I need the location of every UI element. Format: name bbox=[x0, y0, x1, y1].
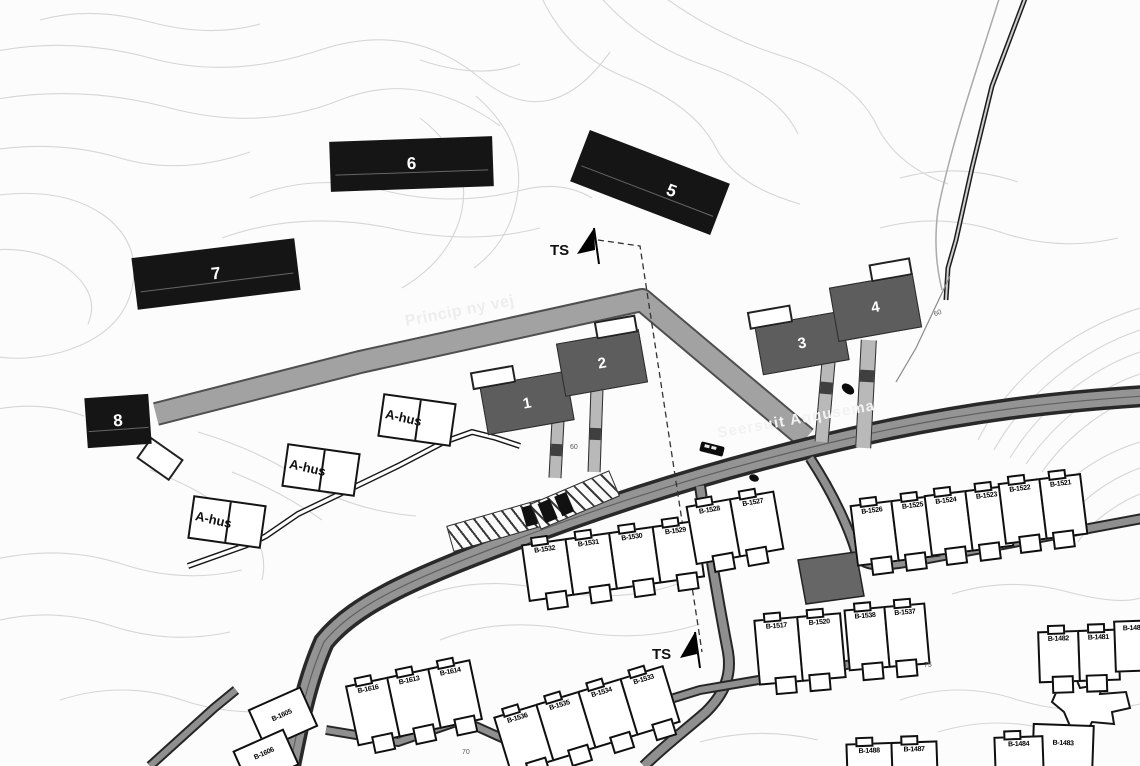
house-label: B-1480 bbox=[1115, 624, 1140, 632]
house: B-1520 bbox=[796, 612, 847, 682]
house-pair: B-1488 B-1487 bbox=[845, 740, 936, 766]
parking-stall-filled bbox=[554, 492, 574, 516]
elevation-mark: 60 bbox=[570, 444, 578, 451]
house-label: B-1488 bbox=[848, 747, 891, 755]
house-label: B-1537 bbox=[886, 608, 924, 618]
site-plan-map: 6 5 7 8 1 2 3 4 A-hus A-hus A-hus B-1532… bbox=[0, 0, 1140, 766]
house-label: B-1606 bbox=[239, 740, 289, 766]
ts-marker-label: TS bbox=[550, 242, 569, 259]
house-label: B-1526 bbox=[852, 505, 892, 517]
elevation-mark: 70 bbox=[462, 749, 470, 756]
house-label: B-1521 bbox=[1041, 478, 1081, 490]
house: B-1480 bbox=[1113, 619, 1140, 672]
house-label: B-1482 bbox=[1039, 635, 1077, 643]
parking-stall-filled bbox=[538, 499, 558, 523]
house-label: B-1531 bbox=[567, 537, 610, 550]
house-label: B-1522 bbox=[1000, 483, 1040, 495]
princip-road bbox=[156, 300, 806, 438]
house-label: B-1520 bbox=[799, 617, 840, 628]
building-number: 1 bbox=[521, 394, 532, 412]
house: B-1521 bbox=[1038, 473, 1088, 540]
house-label: B-1484 bbox=[996, 740, 1042, 749]
ts-flag-icon bbox=[577, 228, 599, 264]
house-pair: B-1517 B-1520 bbox=[753, 612, 844, 685]
house-label: B-1532 bbox=[523, 543, 566, 556]
ts-marker-label: TS bbox=[652, 646, 671, 663]
building-number: 2 bbox=[596, 354, 607, 372]
house-label: B-1524 bbox=[926, 495, 966, 507]
house-pair: B-1522 B-1521 bbox=[998, 473, 1087, 545]
house-pair: B-1528 B-1527 bbox=[685, 491, 782, 565]
house: B-1484 bbox=[993, 735, 1044, 766]
house-label: B-1517 bbox=[756, 621, 797, 632]
house-label: B-1487 bbox=[893, 745, 936, 753]
house-pair: B-1482 B-1481 bbox=[1037, 629, 1119, 684]
building-block-6: 6 bbox=[329, 136, 494, 192]
house: B-1488 bbox=[845, 742, 893, 766]
house-label: B-1605 bbox=[256, 702, 308, 730]
car-icon bbox=[699, 441, 725, 457]
house: B-1487 bbox=[890, 740, 938, 766]
house-label: B-1530 bbox=[611, 531, 654, 544]
house-label: B-1481 bbox=[1079, 634, 1117, 642]
lane-bottom-left bbox=[150, 690, 236, 766]
house: B-1537 bbox=[883, 602, 930, 667]
house-pair: B-1538 B-1537 bbox=[843, 603, 928, 672]
building-number: 3 bbox=[796, 334, 807, 352]
elevation-mark: 75 bbox=[924, 662, 932, 669]
building-block-8: 8 bbox=[84, 394, 151, 448]
building-number: 4 bbox=[870, 298, 881, 316]
road-widening bbox=[798, 552, 864, 604]
house-label: B-1538 bbox=[846, 611, 884, 621]
ts-flag-icon bbox=[680, 632, 700, 668]
house: B-1482 bbox=[1037, 630, 1081, 683]
